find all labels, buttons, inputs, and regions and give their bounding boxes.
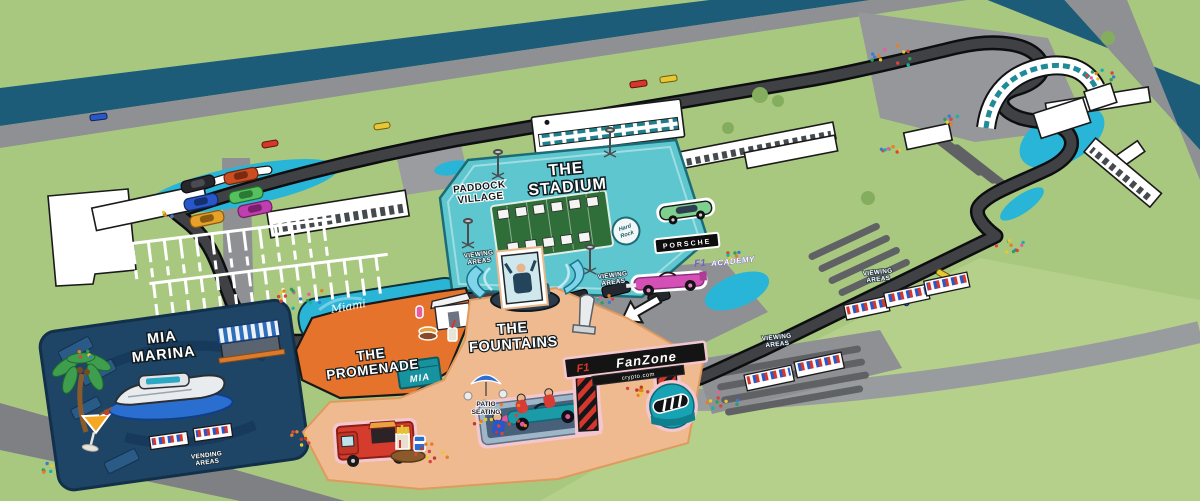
crowd-person bbox=[626, 387, 629, 390]
crowd-person bbox=[89, 355, 92, 358]
crowd-person bbox=[737, 251, 740, 254]
crowd-person bbox=[891, 145, 894, 148]
crowd-person bbox=[484, 418, 487, 421]
crowd-person bbox=[307, 293, 310, 296]
crowd-person bbox=[896, 44, 899, 47]
crowd-person bbox=[640, 386, 643, 389]
crowd-person bbox=[1091, 70, 1094, 73]
crowd-person bbox=[170, 215, 173, 218]
svg-text:THE: THE bbox=[548, 160, 584, 180]
crowd-person bbox=[946, 121, 949, 124]
crowd-person bbox=[1100, 69, 1103, 72]
crowd-person bbox=[508, 422, 511, 425]
driver-portrait bbox=[496, 247, 548, 309]
crowd-person bbox=[717, 396, 720, 399]
crowd-person bbox=[995, 244, 998, 247]
crowd-person bbox=[715, 400, 718, 403]
crowd-person bbox=[1110, 71, 1113, 74]
crowd-person bbox=[871, 52, 874, 55]
crowd-person bbox=[735, 254, 738, 257]
crowd-person bbox=[290, 434, 293, 437]
f1-logo: F1 bbox=[576, 362, 590, 375]
crowd-person bbox=[1096, 77, 1099, 80]
crowd-person bbox=[1020, 244, 1023, 247]
crowd-person bbox=[1007, 239, 1010, 242]
crowd-person bbox=[1005, 250, 1008, 253]
crowd-person bbox=[497, 424, 500, 427]
crowd-person bbox=[300, 438, 303, 441]
crowd-person bbox=[78, 350, 81, 353]
crowd-person bbox=[42, 471, 45, 474]
crowd-person bbox=[639, 389, 642, 392]
crowd-person bbox=[1016, 249, 1019, 252]
crowd-person bbox=[600, 301, 603, 304]
crowd-person bbox=[709, 399, 712, 402]
svg-text:SEATING: SEATING bbox=[472, 409, 501, 416]
crowd-person bbox=[523, 410, 526, 413]
crowd-person bbox=[733, 251, 736, 254]
crowd-person bbox=[880, 148, 883, 151]
crowd-person bbox=[884, 148, 887, 151]
crowd-person bbox=[433, 456, 436, 459]
crowd-person bbox=[320, 289, 323, 292]
crowd-person bbox=[291, 430, 294, 433]
crowd-person bbox=[414, 453, 417, 456]
crowd-person bbox=[887, 147, 890, 150]
crowd-person bbox=[949, 118, 952, 121]
crowd-person bbox=[873, 56, 876, 59]
racing-helmet-icon bbox=[646, 380, 698, 432]
crowd-person bbox=[284, 294, 287, 297]
svg-text:PATIO: PATIO bbox=[476, 401, 495, 408]
crowd-person bbox=[896, 61, 899, 64]
crowd-person bbox=[306, 299, 309, 302]
crowd-person bbox=[441, 451, 444, 454]
crowd-person bbox=[895, 150, 898, 153]
crowd-person bbox=[446, 456, 449, 459]
crowd-person bbox=[1012, 250, 1015, 253]
crowd-person bbox=[79, 355, 82, 358]
crowd-person bbox=[717, 391, 720, 394]
crowd-person bbox=[426, 456, 429, 459]
crowd-person bbox=[304, 437, 307, 440]
crowd-person bbox=[430, 442, 433, 445]
crowd-person bbox=[902, 50, 905, 53]
crowd-person bbox=[428, 450, 431, 453]
crowd-person bbox=[906, 50, 909, 53]
crowd-person bbox=[1110, 78, 1113, 81]
crowd-person bbox=[956, 115, 959, 118]
crowd-person bbox=[611, 297, 614, 300]
crowd-person bbox=[646, 390, 649, 393]
crowd-person bbox=[49, 470, 52, 473]
crowd-person bbox=[490, 418, 493, 421]
crowd-person bbox=[608, 301, 611, 304]
crowd-person bbox=[500, 432, 503, 435]
crowd-person bbox=[607, 294, 610, 297]
crowd-person bbox=[479, 420, 482, 423]
crowd-person bbox=[1009, 244, 1012, 247]
crowd-person bbox=[524, 424, 527, 427]
crowd-person bbox=[879, 58, 882, 61]
crowd-person bbox=[300, 443, 303, 446]
crowd-person bbox=[735, 403, 738, 406]
crowd-person bbox=[907, 63, 910, 66]
bottle-icon bbox=[416, 306, 423, 318]
crowd-person bbox=[719, 404, 722, 407]
crowd-person bbox=[639, 393, 642, 396]
crowd-person bbox=[599, 296, 602, 299]
crowd-person bbox=[948, 115, 951, 118]
svg-text:MIA: MIA bbox=[146, 329, 177, 348]
crowd-person bbox=[724, 400, 727, 403]
crowd-person bbox=[726, 254, 729, 257]
crowd-person bbox=[309, 301, 312, 304]
crowd-person bbox=[706, 401, 709, 404]
crowd-person bbox=[279, 291, 282, 294]
crowd-person bbox=[949, 123, 952, 126]
crowd-person bbox=[290, 288, 293, 291]
crowd-person bbox=[1085, 74, 1088, 77]
crowd-person bbox=[299, 297, 302, 300]
crowd-person bbox=[424, 443, 427, 446]
crowd-person bbox=[517, 419, 520, 422]
crowd-person bbox=[304, 434, 307, 437]
crowd-person bbox=[295, 430, 298, 433]
crowd-person bbox=[429, 460, 432, 463]
crowd-person bbox=[908, 57, 911, 60]
crowd-person bbox=[943, 118, 946, 121]
svg-text:F1: F1 bbox=[694, 258, 707, 270]
crowd-person bbox=[45, 462, 48, 465]
crowd-person bbox=[420, 447, 423, 450]
crowd-person bbox=[318, 301, 321, 304]
burger-icon bbox=[419, 327, 437, 340]
crowd-person bbox=[711, 406, 714, 409]
crowd-person bbox=[291, 307, 294, 310]
crowd-person bbox=[473, 422, 476, 425]
crowd-person bbox=[1095, 72, 1098, 75]
crowd-person bbox=[736, 399, 739, 402]
crowd-person bbox=[495, 431, 498, 434]
crowd-person bbox=[1090, 76, 1093, 79]
crowd-person bbox=[517, 404, 520, 407]
crowd-person bbox=[870, 58, 873, 61]
crowd-person bbox=[1112, 75, 1115, 78]
crowd-person bbox=[635, 388, 638, 391]
crowd-person bbox=[279, 300, 282, 303]
crowd-person bbox=[50, 464, 53, 467]
crowd-person bbox=[515, 414, 518, 417]
crowd-person bbox=[877, 54, 880, 57]
crowd-person bbox=[277, 295, 280, 298]
crowd-person bbox=[500, 403, 503, 406]
map-canvas: Hard Rock bbox=[0, 0, 1200, 501]
miami-gp-campus-map: Hard Rock bbox=[0, 0, 1200, 501]
crowd-person bbox=[86, 350, 89, 353]
crowd-person bbox=[164, 213, 167, 216]
crowd-person bbox=[883, 48, 886, 51]
crowd-person bbox=[307, 441, 310, 444]
